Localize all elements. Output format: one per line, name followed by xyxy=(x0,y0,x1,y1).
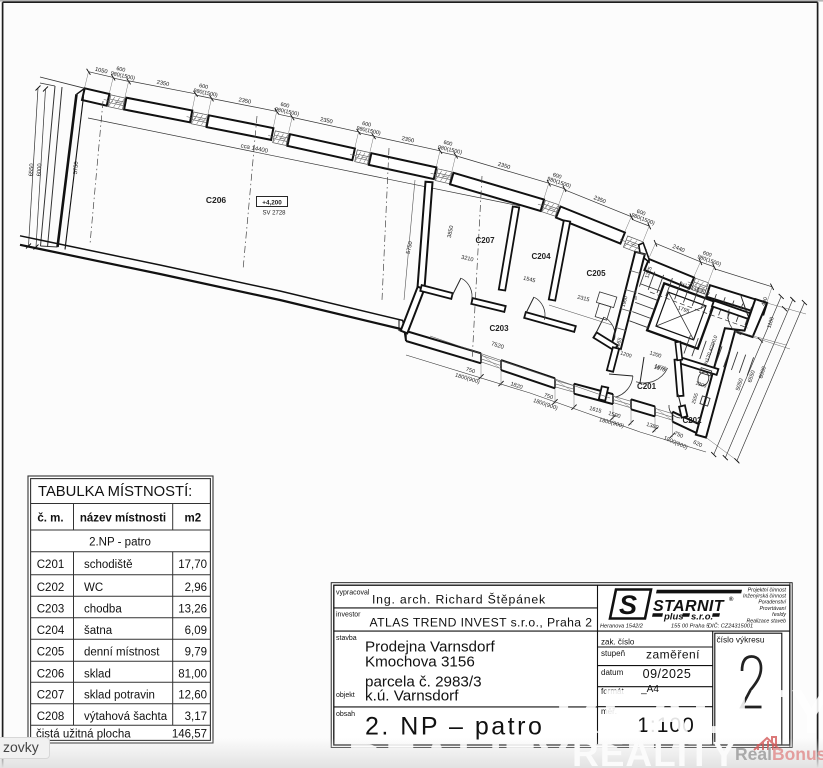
svg-text:C207: C207 xyxy=(475,236,495,245)
svg-text:81,00: 81,00 xyxy=(178,668,207,680)
svg-text:sklad potravin: sklad potravin xyxy=(84,690,155,702)
svg-text:Poradenství: Poradenství xyxy=(758,600,786,606)
svg-text:šatna: šatna xyxy=(84,625,113,637)
svg-text:Heranova 1542/2: Heranova 1542/2 xyxy=(600,624,644,630)
svg-text:stupeň: stupeň xyxy=(601,649,625,658)
svg-text:C204: C204 xyxy=(37,625,65,637)
svg-text:sklad: sklad xyxy=(84,668,111,680)
svg-text:C208: C208 xyxy=(37,711,65,723)
svg-text:6550: 6550 xyxy=(29,163,36,176)
svg-text:k.ú. Varnsdorf: k.ú. Varnsdorf xyxy=(365,688,459,705)
svg-text:m2: m2 xyxy=(184,513,201,525)
svg-text:S: S xyxy=(619,590,637,620)
svg-text:vypracoval: vypracoval xyxy=(336,590,370,597)
svg-text:155 00 Praha 5: 155 00 Praha 5 xyxy=(671,624,710,630)
svg-text:číslo výkresu: číslo výkresu xyxy=(717,635,765,645)
svg-text:C202: C202 xyxy=(37,582,65,594)
svg-text:3,17: 3,17 xyxy=(185,711,207,723)
svg-text:6,09: 6,09 xyxy=(185,625,207,637)
svg-text:C201: C201 xyxy=(637,382,657,391)
svg-text:C207: C207 xyxy=(37,690,65,702)
svg-text:stavba: stavba xyxy=(336,635,357,642)
svg-text:název místnosti: název místnosti xyxy=(80,513,166,525)
svg-text:výtahová šachta: výtahová šachta xyxy=(84,711,168,723)
svg-text:C201: C201 xyxy=(37,559,65,571)
svg-text:objekt: objekt xyxy=(336,692,355,699)
svg-text:9,79: 9,79 xyxy=(185,647,207,659)
svg-text:2.NP - patro: 2.NP - patro xyxy=(89,537,151,549)
svg-text:TABULKA MÍSTNOSTÍ:: TABULKA MÍSTNOSTÍ: xyxy=(38,483,192,500)
svg-text:ATLAS TREND INVEST s.r.o., Pra: ATLAS TREND INVEST s.r.o., Praha 2 xyxy=(370,616,593,630)
svg-text:2,96: 2,96 xyxy=(185,582,207,594)
svg-text:09/2025: 09/2025 xyxy=(643,667,692,681)
svg-text:denní místnost: denní místnost xyxy=(84,647,160,659)
svg-text:s.r.o.: s.r.o. xyxy=(691,612,713,623)
svg-text:WC: WC xyxy=(84,582,103,594)
svg-text:6000: 6000 xyxy=(37,163,44,176)
svg-text:12,60: 12,60 xyxy=(178,690,207,702)
svg-text:C205: C205 xyxy=(586,269,606,278)
svg-text:plus: plus xyxy=(663,612,684,623)
svg-text:C203: C203 xyxy=(489,324,509,333)
svg-text:zaměření: zaměření xyxy=(646,648,700,662)
svg-text:zak. číslo: zak. číslo xyxy=(601,638,635,647)
svg-text:Ing. arch. Richard Štěpánek: Ing. arch. Richard Štěpánek xyxy=(372,592,546,607)
svg-text:C204: C204 xyxy=(531,252,551,261)
svg-text:SV 2728: SV 2728 xyxy=(262,211,286,217)
svg-text:+4,200: +4,200 xyxy=(262,199,282,206)
svg-text:řesldy: řesldy xyxy=(772,612,786,618)
svg-text:investor: investor xyxy=(336,612,361,619)
svg-text:C206: C206 xyxy=(37,668,65,680)
svg-text:®: ® xyxy=(729,596,734,603)
svg-text:datum: datum xyxy=(601,668,624,677)
svg-text:5750: 5750 xyxy=(73,161,80,174)
svg-text:schodiště: schodiště xyxy=(84,559,133,571)
svg-text:obsah: obsah xyxy=(336,711,355,718)
svg-text:C203: C203 xyxy=(37,604,65,616)
svg-text:Realizace staveb: Realizace staveb xyxy=(746,618,786,624)
svg-text:Projektní činnost: Projektní činnost xyxy=(748,587,787,593)
svg-text:C206: C206 xyxy=(206,195,227,205)
svg-text:13,26: 13,26 xyxy=(178,604,207,616)
svg-text:chodba: chodba xyxy=(84,604,122,616)
svg-text:Kmochova 3156: Kmochova 3156 xyxy=(365,654,475,671)
svg-text:17,70: 17,70 xyxy=(178,559,207,571)
svg-text:C205: C205 xyxy=(37,647,65,659)
svg-text:č. m.: č. m. xyxy=(37,513,63,525)
svg-text:Inženýrská činnost: Inženýrská činnost xyxy=(743,594,787,600)
svg-text:Provrtávaní: Provrtávaní xyxy=(759,606,786,612)
